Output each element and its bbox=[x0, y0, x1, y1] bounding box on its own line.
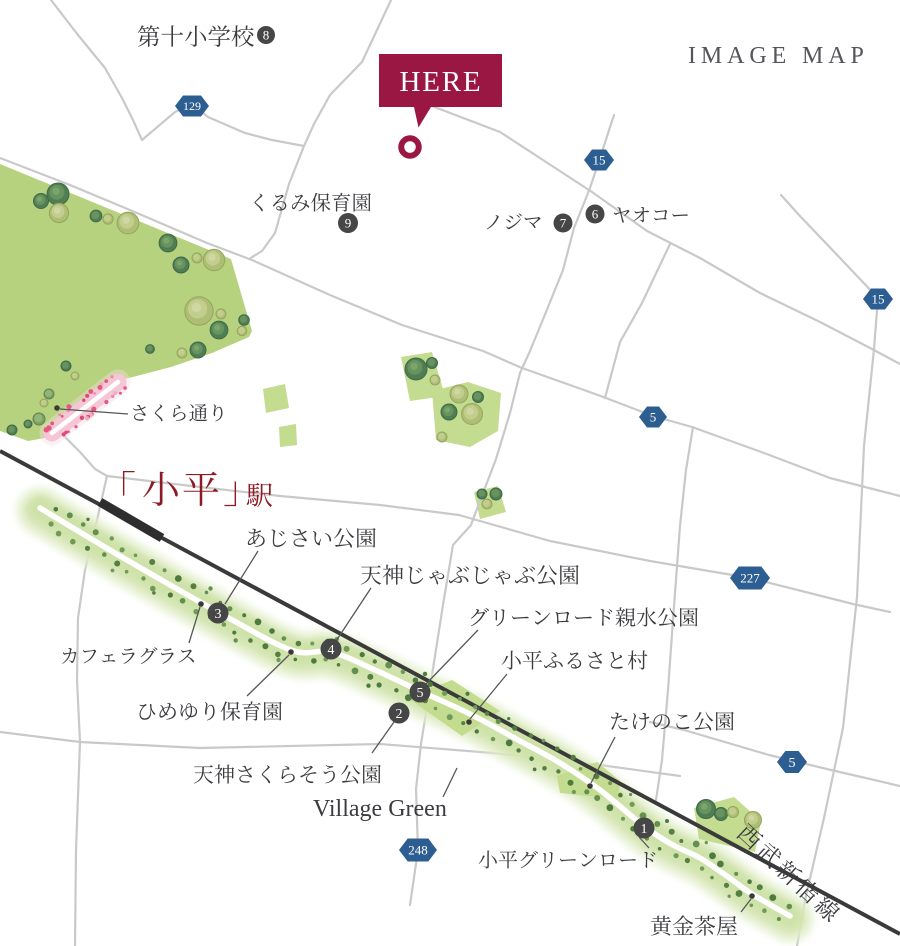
svg-text:5: 5 bbox=[650, 409, 657, 424]
svg-text:248: 248 bbox=[408, 842, 428, 857]
svg-text:HERE: HERE bbox=[400, 66, 483, 98]
svg-text:9: 9 bbox=[345, 215, 352, 230]
svg-text:8: 8 bbox=[263, 27, 270, 42]
svg-text:2: 2 bbox=[396, 707, 403, 722]
svg-text:Village Green: Village Green bbox=[313, 796, 447, 822]
svg-text:IMAGE MAP: IMAGE MAP bbox=[688, 43, 869, 69]
svg-text:5: 5 bbox=[789, 756, 796, 771]
svg-text:227: 227 bbox=[740, 570, 760, 585]
svg-text:1: 1 bbox=[641, 822, 648, 837]
svg-text:7: 7 bbox=[560, 215, 567, 230]
svg-text:6: 6 bbox=[592, 206, 599, 221]
svg-text:15: 15 bbox=[593, 152, 606, 167]
svg-text:4: 4 bbox=[328, 643, 335, 658]
svg-text:129: 129 bbox=[183, 99, 201, 113]
svg-text:15: 15 bbox=[872, 291, 885, 306]
svg-text:5: 5 bbox=[417, 686, 424, 701]
svg-text:3: 3 bbox=[215, 607, 222, 622]
